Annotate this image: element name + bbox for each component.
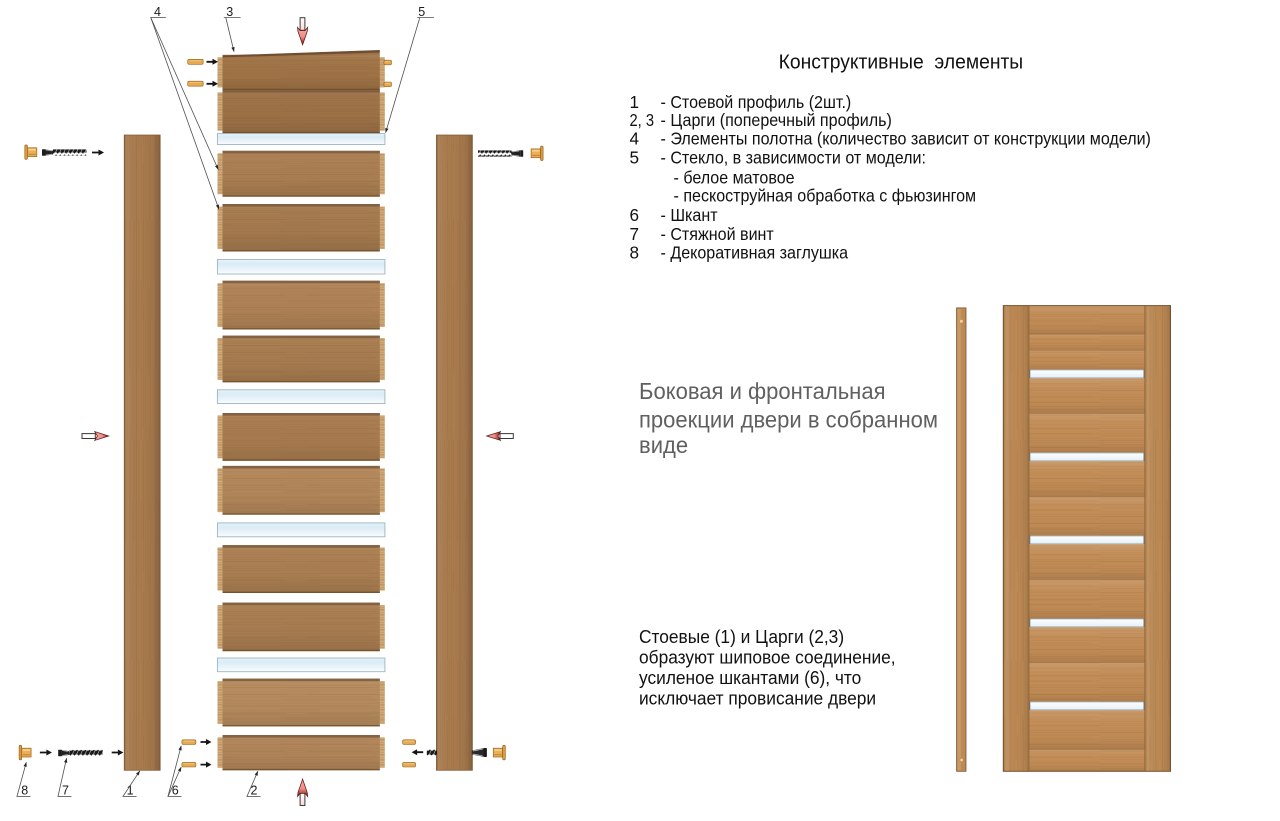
svg-text:7: 7: [630, 224, 640, 244]
svg-text:- Элементы полотна (количество: - Элементы полотна (количество зависит о…: [661, 129, 1151, 149]
svg-text:1: 1: [630, 92, 640, 112]
svg-text:- Декоративная заглушка: - Декоративная заглушка: [661, 243, 849, 263]
svg-text:Конструктивные элементы: Конструктивные элементы: [779, 50, 1024, 73]
svg-text:3: 3: [226, 5, 233, 19]
svg-text:7: 7: [62, 784, 69, 798]
svg-text:- Стоевой профиль (2шт.): - Стоевой профиль (2шт.): [661, 92, 852, 112]
svg-text:8: 8: [630, 243, 640, 263]
svg-text:6: 6: [630, 205, 640, 225]
svg-text:образуют шиповое соединение,: образуют шиповое соединение,: [639, 647, 896, 668]
svg-text:5: 5: [630, 148, 640, 168]
svg-text:Боковая и фронтальная: Боковая и фронтальная: [639, 378, 886, 404]
svg-text:2, 3: 2, 3: [630, 110, 655, 130]
svg-text:проекции двери в собранном: проекции двери в собранном: [639, 406, 938, 432]
svg-text:виде: виде: [639, 432, 688, 458]
svg-text:усиленое шкантами (6), что: усиленое шкантами (6), что: [639, 667, 861, 688]
svg-text:исключает провисание двери: исключает провисание двери: [639, 688, 876, 709]
svg-text:8: 8: [21, 784, 28, 798]
svg-text:- пескоструйная обработка с фь: - пескоструйная обработка с фьюзингом: [674, 185, 977, 205]
svg-text:- белое матовое: - белое матовое: [674, 167, 795, 187]
svg-text:- Стекло, в зависимости от мод: - Стекло, в зависимости от модели:: [661, 148, 927, 168]
svg-text:- Царги (поперечный профиль): - Царги (поперечный профиль): [661, 110, 892, 130]
svg-text:4: 4: [630, 129, 640, 149]
svg-text:- Стяжной винт: - Стяжной винт: [661, 224, 774, 244]
svg-text:Стоевые (1) и Царги (2,3): Стоевые (1) и Царги (2,3): [639, 626, 844, 647]
svg-text:5: 5: [418, 5, 425, 19]
svg-text:- Шкант: - Шкант: [661, 205, 718, 225]
svg-text:4: 4: [154, 5, 161, 19]
